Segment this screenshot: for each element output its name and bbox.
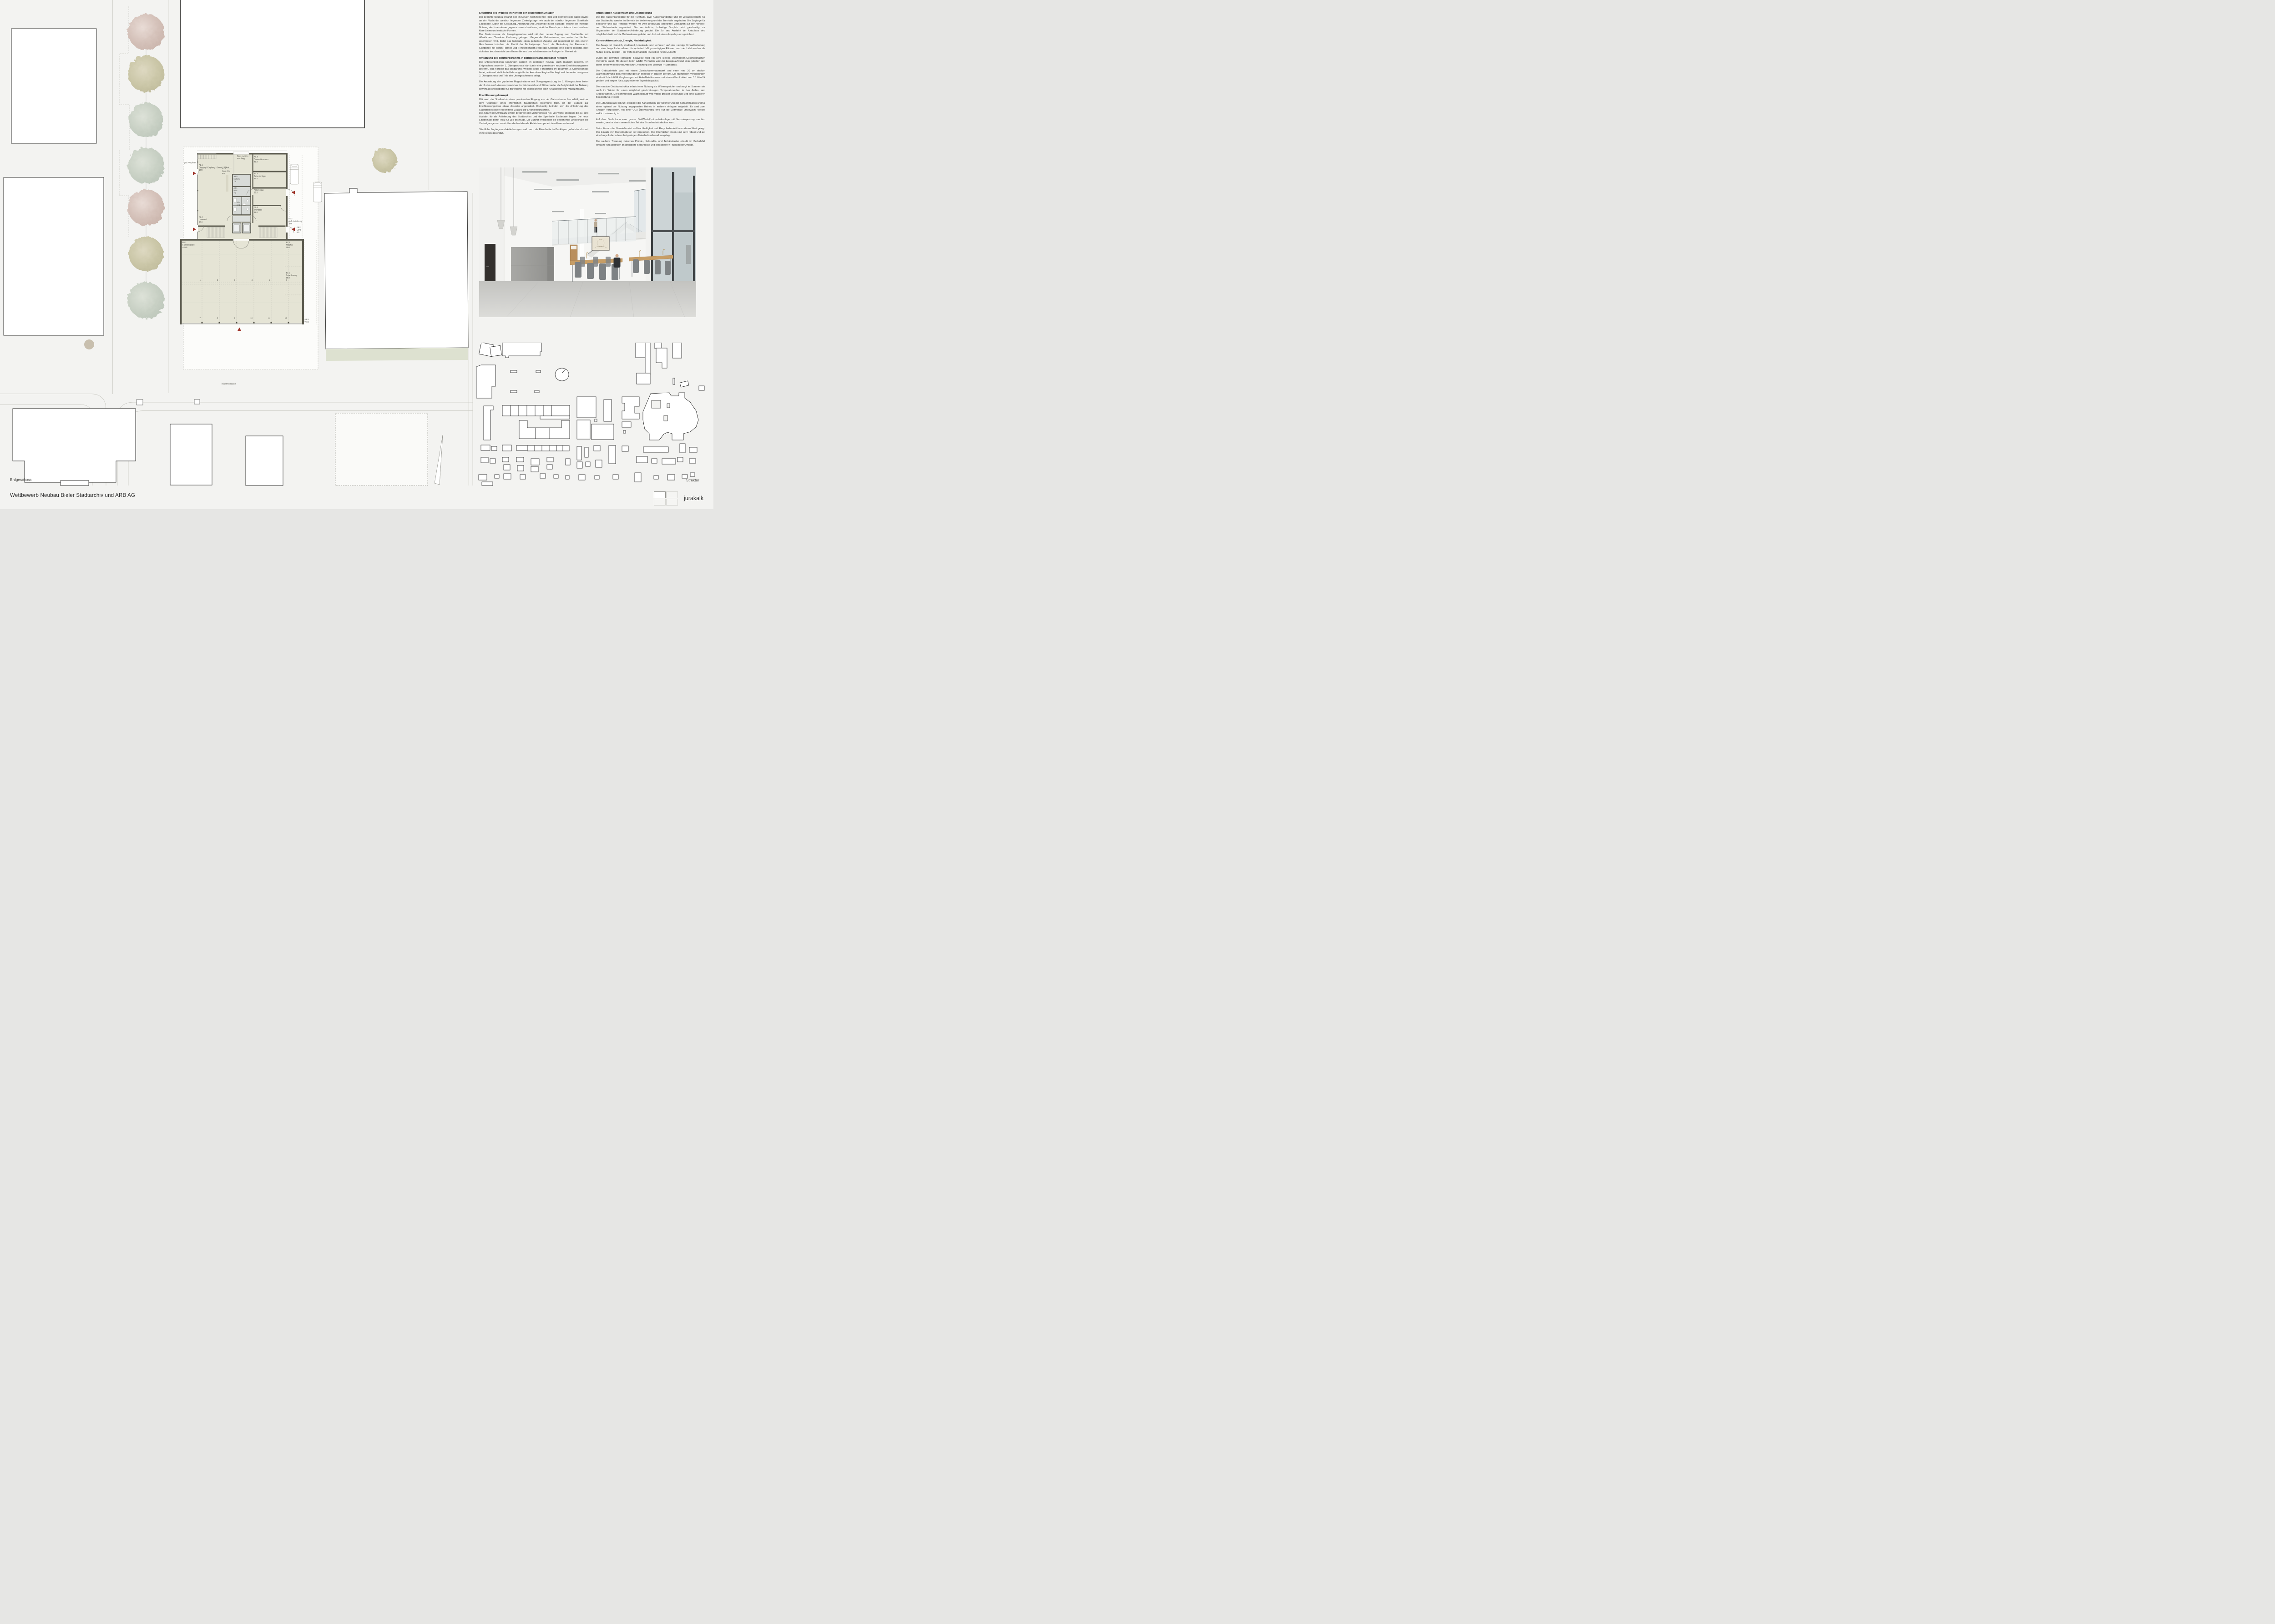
struktur-footprints bbox=[476, 343, 704, 486]
essay-column-2: Organisation Aussenraum und Erschliessun… bbox=[596, 12, 705, 150]
room-area: 20.0 bbox=[288, 223, 293, 225]
room-name: Anlieferung bbox=[254, 189, 264, 191]
essay-column-1: Situierung des Projekts im Kontext der b… bbox=[479, 12, 588, 138]
essay-paragraph: Die unterschiedlichen Nutzungen werden i… bbox=[479, 61, 588, 78]
room-code: B2.1 bbox=[286, 272, 290, 274]
vorplatz-label: ged. Vorplatz bbox=[184, 162, 196, 164]
interior-rendering bbox=[479, 167, 696, 317]
room-area: 22.0 bbox=[254, 161, 258, 163]
room-area: 60.0 bbox=[199, 221, 203, 223]
room-name: Zwischenlager bbox=[254, 175, 267, 177]
room-code: A2.2 bbox=[199, 216, 203, 218]
room-code: A1.4 bbox=[254, 206, 258, 208]
essay-paragraph: Während das Stadtarchiv einen prominente… bbox=[479, 98, 588, 126]
velos-label: Velos bbox=[305, 321, 309, 323]
essay-paragraph: Die Anordnung der geplanten Magazinräume… bbox=[479, 81, 588, 91]
room-area: 30.0 bbox=[286, 246, 290, 248]
room-name: Lesesaal bbox=[199, 218, 207, 221]
room-name: Material bbox=[286, 244, 293, 246]
room-name: Cont. bbox=[297, 229, 301, 231]
board-title: Wettbewerb Neubau Bieler Stadtarchiv und… bbox=[10, 493, 135, 498]
room-name: Material bbox=[234, 178, 240, 180]
room-area: 14.0 bbox=[237, 204, 241, 206]
person-outside bbox=[686, 245, 691, 264]
competition-board: ged. Vorplatz A2.1 Eingang / Empfang / D… bbox=[0, 0, 713, 509]
room-code: A2.4 bbox=[237, 201, 241, 203]
room-area: 8.0 bbox=[297, 231, 299, 233]
essay-section: Umsetzung des Raumprogramms in betriebso… bbox=[479, 57, 588, 91]
room-area: 5.0 bbox=[222, 172, 225, 175]
floor bbox=[479, 281, 696, 317]
essay-heading: Erschliessungskonzept bbox=[479, 94, 588, 98]
room-code: B2.2 bbox=[286, 241, 290, 243]
logo-cell bbox=[666, 491, 678, 498]
parking-stall-number: 10 bbox=[250, 317, 253, 319]
parking-stall-number: 11 bbox=[268, 317, 270, 319]
essay-paragraph: Die Gebäudehülle wird mit einem Zweischa… bbox=[596, 70, 705, 83]
essay-section: Organisation Aussenraum und Erschliessun… bbox=[596, 12, 705, 36]
parcel-boundaries bbox=[119, 6, 129, 237]
room-code: A2.3 bbox=[222, 167, 226, 170]
essay-heading: Konstruktionsprinzip,Energie, Nachhaltig… bbox=[596, 40, 705, 43]
parking-stall-number: 12 bbox=[285, 317, 287, 319]
van-icon bbox=[313, 182, 322, 202]
room-area: 60.0 bbox=[199, 169, 203, 171]
struktur-caption: Struktur bbox=[686, 478, 699, 482]
room-code: A5.2 bbox=[297, 226, 301, 228]
room-name: Retablierung bbox=[286, 274, 297, 277]
plan-caption: Erdgeschoss bbox=[10, 478, 31, 482]
logo-mark bbox=[654, 491, 678, 506]
room-name: ged. Anlieferung bbox=[288, 220, 303, 223]
essay-paragraph: Die drei Aussenparkplätze für die Turnha… bbox=[596, 16, 705, 36]
room-code: A1.5 bbox=[234, 175, 238, 177]
room-name: Gard. Pu. bbox=[222, 170, 230, 172]
room-code: A2.1 bbox=[199, 164, 203, 166]
room-name: Quarantäneraum bbox=[254, 158, 268, 161]
room-area: 22.0 bbox=[254, 211, 258, 213]
green-strip bbox=[326, 348, 468, 361]
essay-heading: Situierung des Projekts im Kontext der b… bbox=[479, 12, 588, 15]
essay-paragraph: Die saubere Trennung zwischen Primär-, S… bbox=[596, 140, 705, 147]
essay-heading: Organisation Aussenraum und Erschliessun… bbox=[596, 12, 705, 15]
essay-paragraph: Die Anlage ist räumlich, strukturell, ko… bbox=[596, 44, 705, 55]
essay-paragraph: Die massive Gebäudestruktur erlaubt eine… bbox=[596, 86, 705, 99]
room-area: 22.0 bbox=[254, 177, 258, 180]
street-label: Mattenstrasse bbox=[222, 383, 236, 385]
van-icon bbox=[290, 164, 298, 184]
essay-paragraph: Der geplante Neubau ergänzt den im Gevie… bbox=[479, 16, 588, 54]
essay-section: Situierung des Projekts im Kontext der b… bbox=[479, 12, 588, 54]
essay-paragraph: Beim Einsatz der Baustoffe wird auf Nach… bbox=[596, 127, 705, 138]
room-code: A1.2 bbox=[254, 172, 258, 175]
room-area: 7.0 bbox=[234, 180, 237, 182]
struktur-map bbox=[476, 343, 705, 494]
velos-code: 6.6.5 bbox=[305, 318, 309, 320]
logo-cell bbox=[654, 491, 666, 498]
room-area: 22.0 bbox=[254, 192, 258, 194]
essay-paragraph: Auf dem Dach kann eine grosse Ost-West-P… bbox=[596, 118, 705, 125]
logo-cell bbox=[666, 499, 678, 506]
essay-heading: Umsetzung des Raumprogramms in betriebso… bbox=[479, 57, 588, 61]
north-arrow bbox=[435, 435, 443, 485]
framed-map bbox=[592, 237, 609, 250]
room-name: Büro Aufsicht / bbox=[237, 155, 250, 157]
essay-paragraph: Durch die gewählte kompakte Bauweise wir… bbox=[596, 57, 705, 67]
room-name: Eingang / Empfang / Dienst / Bibliot....… bbox=[199, 167, 232, 169]
room-code: A1.2 bbox=[288, 218, 293, 220]
room-name: Fahrzeughalle bbox=[182, 244, 195, 246]
room-code: A5.1 bbox=[234, 187, 238, 189]
room-name: Werkstatt bbox=[254, 209, 262, 211]
small-tree bbox=[84, 339, 94, 349]
essay-paragraph: Die Lüftungsanlage ist zur Reduktion der… bbox=[596, 102, 705, 116]
room-area: 445.0 bbox=[182, 246, 187, 248]
essay-section: Konstruktionsprinzip,Energie, Nachhaltig… bbox=[596, 40, 705, 147]
room-area: 7.0 bbox=[234, 192, 237, 194]
room-name: Empfang bbox=[237, 157, 245, 160]
logo-cell bbox=[654, 499, 666, 506]
essay-paragraph: Sämtliche Zugänge und Anlieferungen sind… bbox=[479, 128, 588, 135]
room-code: B1.1 bbox=[182, 241, 187, 243]
room-code: A1.3 bbox=[254, 156, 258, 158]
logo-text: jurakalk bbox=[684, 495, 703, 501]
room-name: Putz. bbox=[234, 189, 238, 192]
essay-section: ErschliessungskonzeptWährend das Stadtar… bbox=[479, 94, 588, 135]
